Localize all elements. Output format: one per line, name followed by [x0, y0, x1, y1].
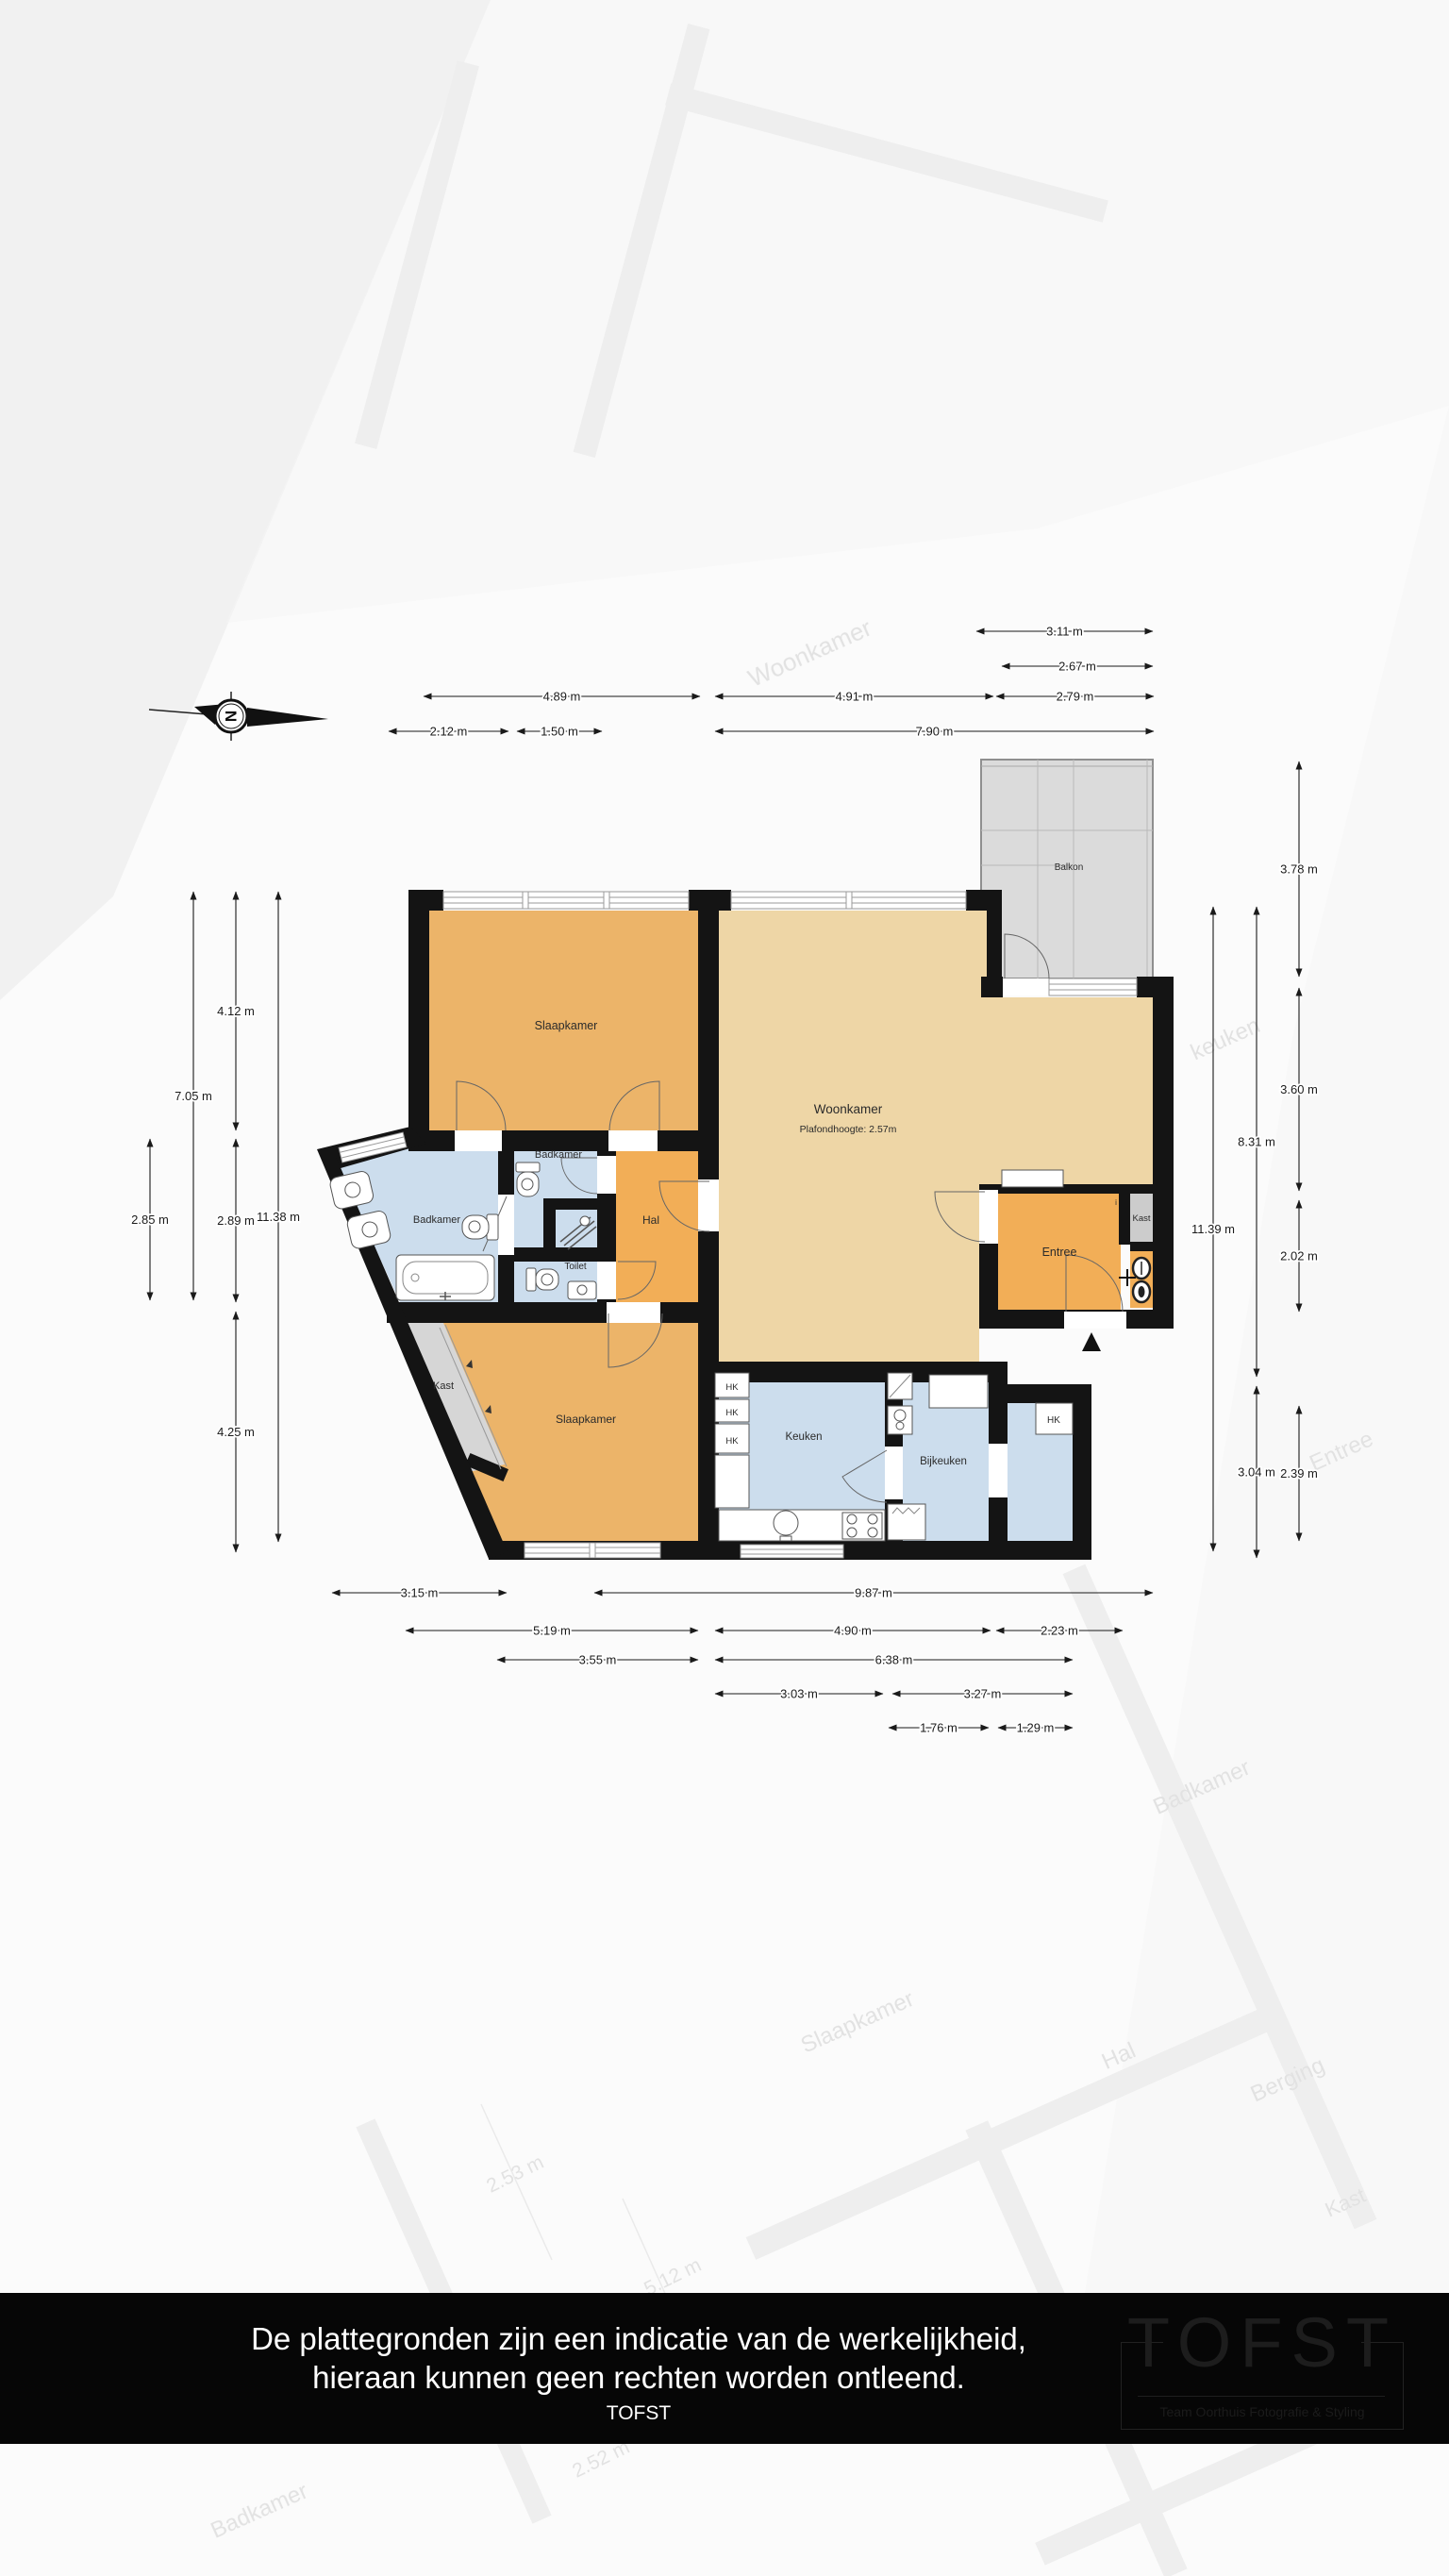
- room-label: Keuken: [785, 1431, 822, 1443]
- window-slaapkamer1-top: [443, 892, 689, 909]
- room-hal: [616, 1151, 698, 1304]
- dimension-label: 3.03 m: [780, 1687, 818, 1701]
- window-keuken-bottom: [741, 1545, 843, 1558]
- logo-subtitle: Team Oorthuis Fotografie & Styling: [1121, 2404, 1404, 2419]
- room-label: Woonkamer: [814, 1102, 883, 1116]
- dimension-label: 2.89 m: [217, 1213, 255, 1228]
- dimension-label: 2.79 m: [1057, 690, 1094, 704]
- room-label: HK: [725, 1436, 739, 1447]
- room-label: Kast: [433, 1380, 454, 1392]
- dimension-label: 2.39 m: [1280, 1466, 1318, 1480]
- window-slaapkamer2-bottom: [525, 1543, 660, 1558]
- watermark-label: keuken: [1187, 1012, 1264, 1065]
- compass-letter: N: [222, 711, 240, 722]
- room-label: i: [1115, 1198, 1117, 1207]
- logo-title: TOFST: [1121, 2302, 1404, 2383]
- dimension-label: 3.27 m: [964, 1687, 1002, 1701]
- kitchen-counter: [719, 1510, 885, 1541]
- tofst-logo: TOFST Team Oorthuis Fotografie & Styling: [1121, 2304, 1404, 2429]
- dimension-label: 3.78 m: [1280, 862, 1318, 877]
- dimension-label: 1.50 m: [541, 725, 578, 739]
- dimension-label: 9.87 m: [855, 1586, 892, 1600]
- watermark-label: 2.53 m: [483, 2151, 547, 2198]
- dimension-label: 1.76 m: [920, 1721, 958, 1735]
- dimension-label: 2.85 m: [131, 1213, 169, 1227]
- toilet-icon: [516, 1163, 540, 1196]
- dimension-label: 3.15 m: [401, 1586, 439, 1600]
- window-woonkamer-top: [731, 892, 966, 909]
- dimension-label: 2.12 m: [430, 725, 468, 739]
- dimension-label: 3.11 m: [1046, 625, 1083, 639]
- dimension-label: 4.91 m: [836, 690, 874, 704]
- room-label: Entree: [1042, 1246, 1077, 1259]
- room-label: HK: [1047, 1415, 1060, 1426]
- room-label: HK: [725, 1382, 739, 1393]
- room-label: Badkamer: [535, 1149, 582, 1161]
- room-label: Kast: [1132, 1213, 1150, 1224]
- dimension-label: 7.90 m: [916, 725, 954, 739]
- dimension-label: 2.02 m: [1280, 1249, 1318, 1263]
- boiler-icon: [888, 1406, 912, 1434]
- footer-brand: TOFST: [0, 2402, 1277, 2425]
- dimension-label: 3.04 m: [1238, 1465, 1275, 1480]
- dimension-label: 11.38 m: [257, 1210, 300, 1224]
- apartment-floorplan: SlaapkamerWoonkamerPlafondhoogte: 2.57mB…: [317, 760, 1174, 1560]
- dimension-label: 4.89 m: [543, 690, 581, 704]
- entrance-arrow-icon: [1082, 1332, 1101, 1351]
- room-label: Toilet: [564, 1262, 587, 1272]
- dimension-label: 4.25 m: [217, 1425, 255, 1439]
- watermark-label: Badkamer: [207, 2479, 311, 2544]
- stove-icon: [842, 1513, 882, 1539]
- room-label: Hal: [642, 1213, 659, 1227]
- dimension-label: 5.19 m: [533, 1624, 571, 1638]
- floorplan-canvas: WoonkamerkeukenEntreeBadkamerSlaapkamerH…: [0, 0, 1449, 2576]
- disclaimer-text: De plattegronden zijn een indicatie van …: [0, 2319, 1277, 2425]
- dimension-label: 7.05 m: [175, 1089, 212, 1103]
- room-label: HK: [725, 1408, 739, 1418]
- bathtub-icon: [396, 1255, 494, 1300]
- room-label: Bijkeuken: [920, 1456, 967, 1467]
- dimension-label: 4.90 m: [834, 1624, 872, 1638]
- watermark-label: Slaapkamer: [797, 1986, 918, 2059]
- disclaimer-line-1: De plattegronden zijn een indicatie van …: [0, 2319, 1277, 2358]
- room-label: Plafondhoogte: 2.57m: [800, 1124, 897, 1135]
- window-balkon-door: [1049, 979, 1137, 995]
- sink-basin-icon: [888, 1504, 925, 1540]
- dimension-label: 3.60 m: [1280, 1082, 1318, 1096]
- toilet-icon: [526, 1268, 558, 1291]
- entree-cabinet: [1002, 1170, 1063, 1187]
- sink-icon: [568, 1281, 596, 1299]
- room-label: Slaapkamer: [556, 1413, 616, 1426]
- dimension-label: 8.31 m: [1238, 1135, 1275, 1149]
- watermark-label: Woonkamer: [743, 613, 875, 693]
- dimension-label: 6.38 m: [875, 1653, 913, 1667]
- dimension-label: 2.67 m: [1058, 660, 1096, 674]
- dimension-label: 11.39 m: [1191, 1222, 1235, 1236]
- dimension-label: 4.12 m: [217, 1004, 255, 1018]
- disclaimer-line-2: hieraan kunnen geen rechten worden ontle…: [0, 2358, 1277, 2397]
- dimension-label: 3.55 m: [579, 1653, 617, 1667]
- toilet-icon: [462, 1214, 498, 1240]
- dimension-label: 2.23 m: [1041, 1624, 1078, 1638]
- floorplan-page: WoonkamerkeukenEntreeBadkamerSlaapkamerH…: [0, 0, 1449, 2576]
- dimension-label: 1.29 m: [1017, 1721, 1055, 1735]
- room-label: Slaapkamer: [535, 1019, 598, 1032]
- logo-divider: [1138, 2396, 1385, 2397]
- footer-disclaimer-bar: De plattegronden zijn een indicatie van …: [0, 2293, 1449, 2444]
- room-label: Badkamer: [413, 1214, 460, 1226]
- room-label: Balkon: [1055, 862, 1084, 873]
